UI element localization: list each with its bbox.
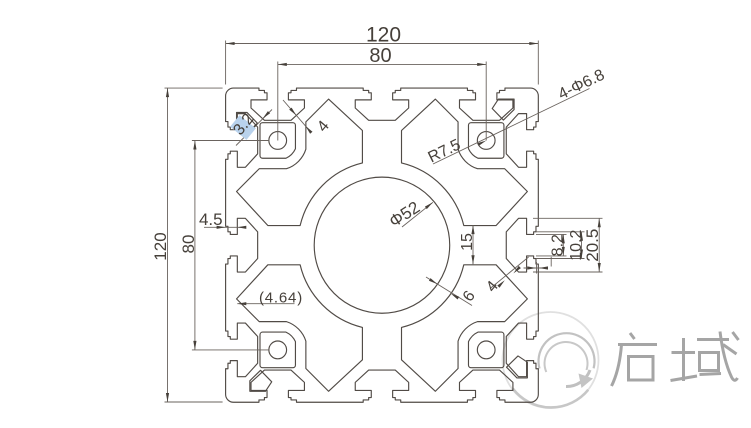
svg-text:8.2: 8.2 — [550, 234, 567, 256]
svg-text:80: 80 — [179, 235, 198, 254]
svg-text:20.5: 20.5 — [583, 229, 602, 262]
svg-text:80: 80 — [369, 45, 391, 67]
svg-text:15: 15 — [459, 233, 476, 251]
svg-text:4.5: 4.5 — [199, 210, 223, 229]
svg-text:120: 120 — [151, 232, 170, 260]
svg-text:(4.64): (4.64) — [259, 290, 303, 307]
svg-text:120: 120 — [366, 24, 401, 47]
